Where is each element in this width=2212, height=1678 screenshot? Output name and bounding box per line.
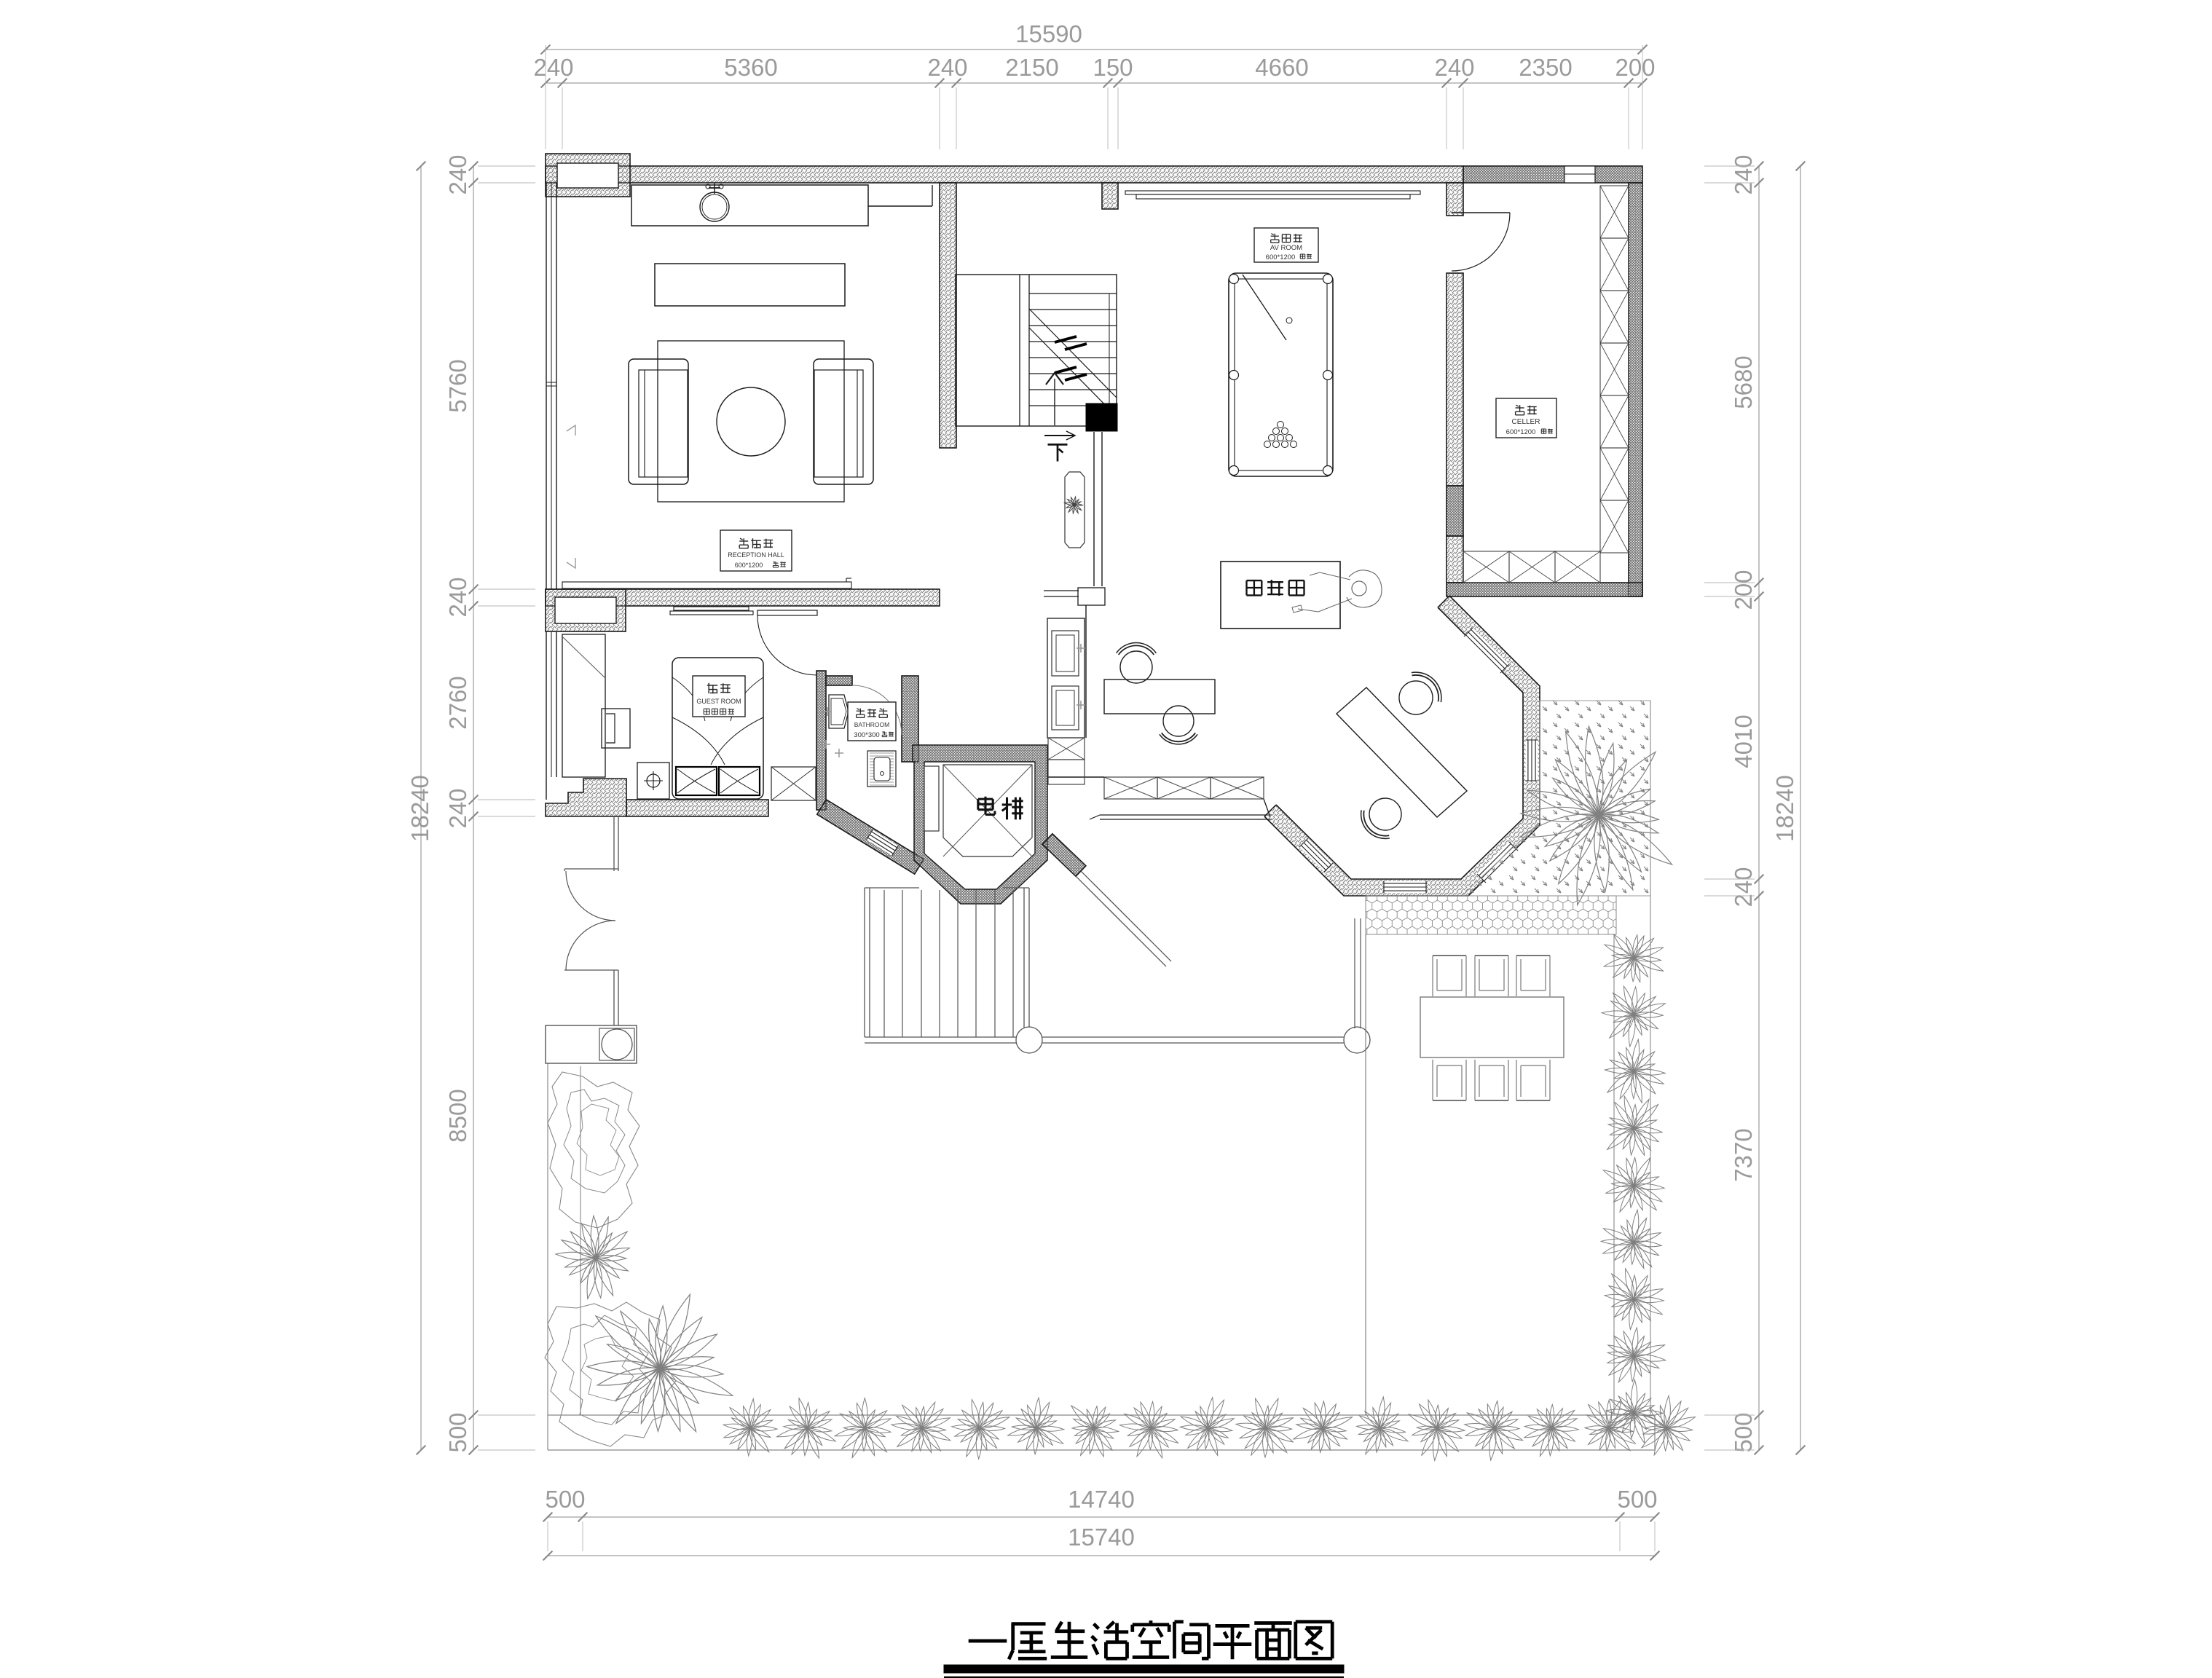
svg-text:4660: 4660 <box>1255 54 1308 81</box>
svg-text:14740: 14740 <box>1068 1486 1135 1513</box>
svg-text:2150: 2150 <box>1005 54 1058 81</box>
svg-text:CELLER: CELLER <box>1512 418 1540 426</box>
svg-text:240: 240 <box>444 788 471 828</box>
svg-text:15740: 15740 <box>1068 1524 1135 1551</box>
svg-text:240: 240 <box>533 54 573 81</box>
svg-text:18240: 18240 <box>406 775 433 842</box>
svg-text:7370: 7370 <box>1730 1128 1757 1181</box>
svg-text:150: 150 <box>1093 54 1133 81</box>
svg-text:500: 500 <box>1617 1486 1657 1513</box>
svg-text:500: 500 <box>545 1486 585 1513</box>
svg-text:GUEST ROOM: GUEST ROOM <box>696 698 741 705</box>
svg-text:600*1200: 600*1200 <box>735 562 763 569</box>
svg-text:240: 240 <box>444 577 471 617</box>
svg-text:240: 240 <box>444 154 471 194</box>
svg-text:4010: 4010 <box>1730 714 1757 768</box>
svg-text:300*300: 300*300 <box>854 731 879 739</box>
svg-text:2350: 2350 <box>1519 54 1572 81</box>
svg-text:RECEPTION HALL: RECEPTION HALL <box>728 551 784 559</box>
svg-text:240: 240 <box>927 54 967 81</box>
svg-text:5760: 5760 <box>444 359 471 412</box>
svg-text:AV ROOM: AV ROOM <box>1270 244 1302 252</box>
svg-text:500: 500 <box>1730 1412 1757 1452</box>
svg-text:500: 500 <box>444 1412 471 1452</box>
svg-text:240: 240 <box>1730 154 1757 194</box>
svg-text:600*1200: 600*1200 <box>1266 253 1296 261</box>
svg-text:5680: 5680 <box>1730 355 1757 409</box>
svg-text:15590: 15590 <box>1015 20 1082 47</box>
svg-text:18240: 18240 <box>1771 775 1798 842</box>
svg-text:8500: 8500 <box>444 1089 471 1142</box>
svg-text:240: 240 <box>1730 867 1757 907</box>
svg-text:5360: 5360 <box>724 54 777 81</box>
svg-text:2760: 2760 <box>444 676 471 729</box>
svg-text:200: 200 <box>1615 54 1655 81</box>
svg-text:600*1200: 600*1200 <box>1506 428 1536 436</box>
svg-text:200: 200 <box>1730 570 1757 610</box>
svg-text:240: 240 <box>1434 54 1474 81</box>
svg-text:BATHROOM: BATHROOM <box>854 721 889 728</box>
